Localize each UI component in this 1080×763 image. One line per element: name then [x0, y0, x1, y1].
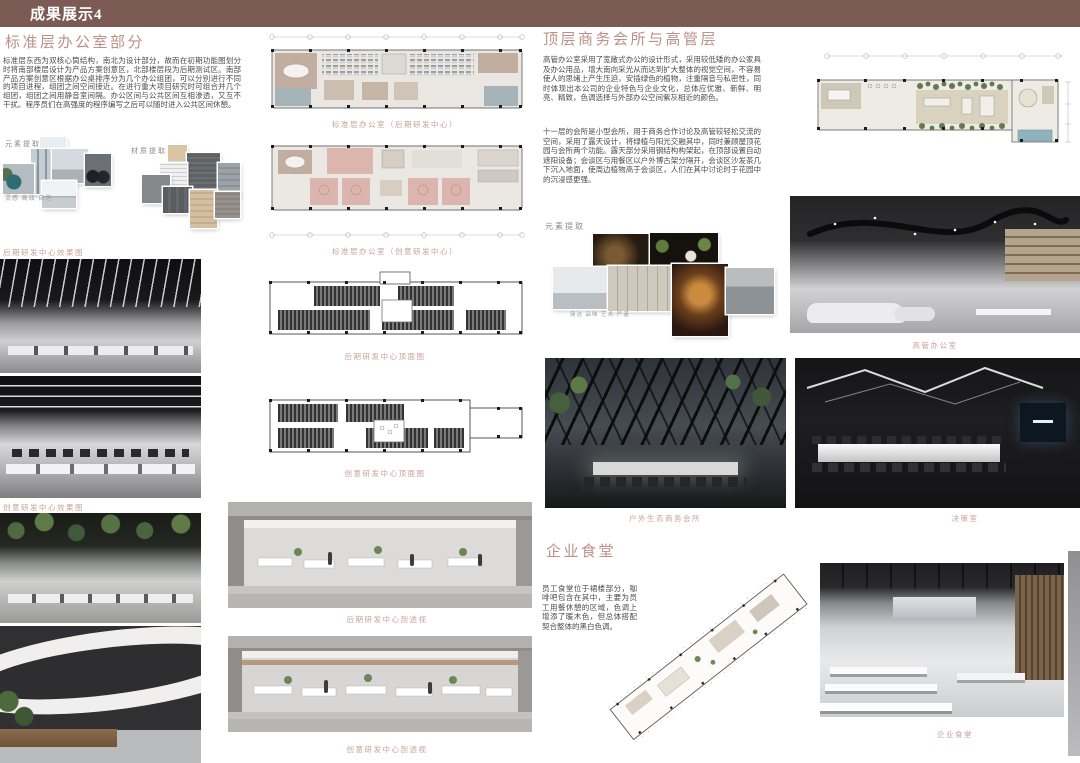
- chair-row-back: [812, 436, 1006, 444]
- material-swatch: [163, 187, 192, 213]
- plan2-caption: 标准层办公室（创意研发中心）: [290, 246, 500, 257]
- keywords-caption-left: 灵感 高效 自信: [5, 193, 52, 202]
- desk-row: [8, 594, 193, 603]
- chairs: [584, 477, 748, 488]
- ceiling1-caption: 后期研发中心顶面图: [285, 351, 485, 362]
- canteen-caption: 企业食堂: [880, 729, 1030, 740]
- dining-table: [593, 462, 738, 476]
- white-sofa: [807, 303, 906, 324]
- exec-office-caption: 高管办公室: [860, 340, 1010, 351]
- desk-row: [8, 346, 193, 355]
- white-armchair: [894, 307, 935, 321]
- inspiration-photo: [608, 266, 674, 311]
- left-section-heading: 标准层办公室部分: [5, 31, 145, 52]
- late-rnd-render-photo-2: [0, 376, 201, 498]
- table-row: [825, 684, 937, 691]
- render-caption-late-rnd: 后期研发中心效果图: [3, 247, 84, 258]
- decision-room-render: [795, 358, 1080, 508]
- plants: [0, 626, 201, 763]
- section1-caption: 后期研发中心剖透视: [307, 614, 467, 625]
- floor-plan-standard-late: [262, 28, 532, 120]
- presentation-screen: [1020, 403, 1066, 442]
- right-section-heading: 顶层商务会所与高管层: [543, 28, 718, 49]
- section-perspective-creative: [228, 636, 532, 732]
- table-row: [957, 673, 1025, 680]
- inspiration-photo: [650, 233, 718, 266]
- bookshelf: [1005, 229, 1080, 281]
- material-swatch: [215, 192, 240, 218]
- section2-caption: 创意研发中心剖透视: [307, 744, 467, 755]
- decision-room-caption: 决策室: [885, 513, 1045, 524]
- inspiration-photo: [553, 267, 611, 309]
- canteen-render: [820, 563, 1064, 717]
- inspiration-collage-right: [548, 230, 778, 342]
- section-perspective-late: [228, 502, 532, 608]
- table-row: [820, 703, 952, 711]
- hanging-plants: [0, 513, 201, 623]
- inspiration-photo: [593, 234, 651, 268]
- left-section-paragraph: 标准层东西为双核心筒结构，南北为设计部分，故而在初期功能图划分时将南部楼层设计为…: [3, 57, 241, 110]
- desk-row: [6, 464, 195, 474]
- window-band: [893, 597, 976, 619]
- late-rnd-render-photo-1: [0, 259, 201, 373]
- screen-logo: [1033, 420, 1053, 423]
- inspiration-photo: [672, 264, 728, 336]
- render-caption-creative-rnd: 创意研发中心效果图: [3, 502, 84, 513]
- material-swatch: [190, 190, 217, 228]
- keywords-caption-right: 简洁 品味 艺术 严谨: [570, 310, 630, 318]
- creative-rnd-render-photo-1: [0, 513, 201, 623]
- wood-slat-wall: [1015, 575, 1064, 680]
- conference-table: [818, 444, 1000, 462]
- desk: [976, 309, 1051, 315]
- right-paragraph-1: 高管办公室采用了宽敞式办公的设计形式，采用较低矮的办公家具及办公用品，增大南向采…: [543, 55, 761, 103]
- creative-rnd-render-photo-2: [0, 626, 201, 763]
- canteen-floor-plan: [598, 552, 818, 760]
- right-edge-strip: [1068, 551, 1080, 756]
- inspiration-photo: [52, 149, 88, 183]
- table-row: [830, 667, 928, 674]
- executive-office-render: [790, 196, 1080, 333]
- outdoor-club-render: [545, 358, 786, 508]
- ceiling-plan-creative: [262, 386, 530, 464]
- ceiling-light-lines: [0, 259, 201, 307]
- plan1-caption: 标准层办公室（后期研发中心）: [290, 119, 500, 130]
- floor-plan-standard-creative: [262, 138, 532, 244]
- monitor-row: [12, 449, 189, 457]
- presentation-board: 成果展示4 标准层办公室部分 标准层东西为双核心筒结构，南北为设计部分，故而在初…: [0, 0, 1080, 763]
- ceiling2-caption: 创意研发中心顶面图: [285, 468, 485, 479]
- chair-row-front: [812, 463, 1006, 472]
- ceiling-light-strips: [0, 376, 201, 413]
- page-title: 成果展示4: [30, 3, 103, 24]
- right-paragraph-2: 十一层的会所是小型会所，用于商务合作讨论及高管较轻松交流的空间，采用了露天设计，…: [543, 127, 761, 185]
- outdoor-club-caption: 户外生态商务会所: [585, 513, 745, 524]
- inspiration-photo: [3, 164, 34, 194]
- ceiling-plan-late: [262, 262, 530, 348]
- material-collage: [128, 140, 256, 236]
- floor-plan-top-club: [812, 42, 1076, 150]
- inspiration-photo: [85, 154, 111, 186]
- inspiration-photo: [726, 268, 774, 314]
- top-title-bar: 成果展示4: [0, 0, 1080, 27]
